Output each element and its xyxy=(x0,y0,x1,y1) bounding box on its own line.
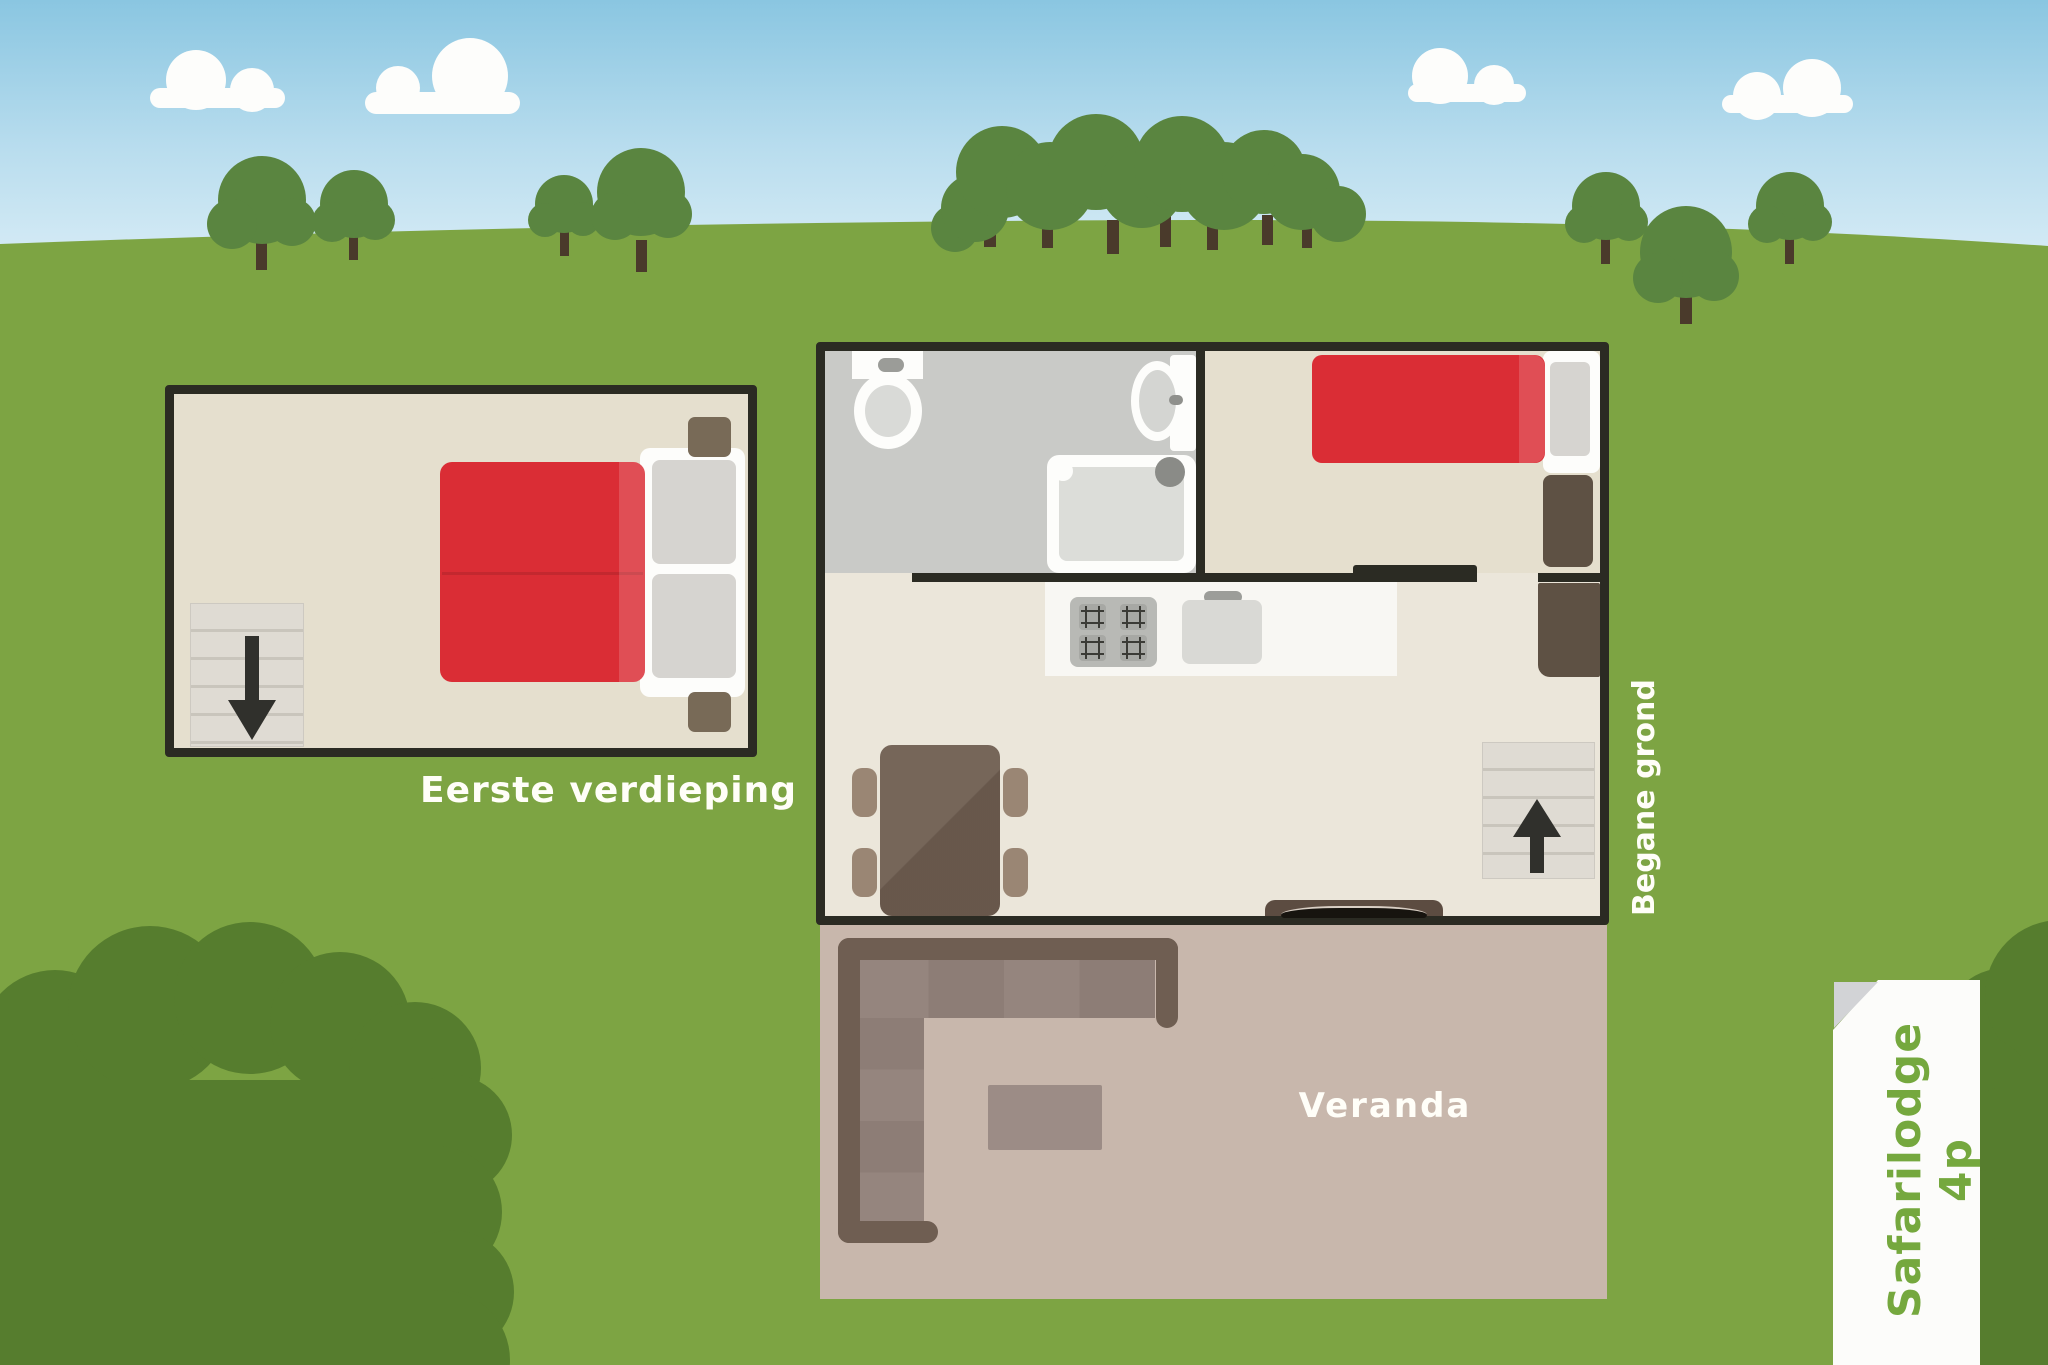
arrow-up-head-icon xyxy=(1513,799,1561,837)
first-floor-plan xyxy=(165,385,757,757)
lodge-sign-label: Safarilodge 4p xyxy=(1880,995,1982,1345)
burner-icon xyxy=(1120,635,1147,661)
chair xyxy=(852,848,877,897)
scene: Eerste verdieping Begane grond Veranda S… xyxy=(0,0,2048,1365)
sofa-cushions-top xyxy=(853,953,1155,1018)
chair xyxy=(1003,848,1028,897)
sofa-back-top xyxy=(838,938,1178,960)
burner-icon xyxy=(1079,635,1106,661)
arrow-up-icon xyxy=(1530,835,1544,873)
cloud-3 xyxy=(1408,48,1526,105)
arrow-down-head-icon xyxy=(228,700,276,740)
stove xyxy=(1070,597,1157,667)
sliding-door xyxy=(1353,565,1477,576)
shower-head-icon xyxy=(1053,461,1073,481)
burner-icon xyxy=(1079,604,1106,630)
sofa-armrest-right xyxy=(1156,938,1178,1028)
ground-floor-label: Begane grond xyxy=(1627,716,1662,916)
cloud-2 xyxy=(365,38,520,114)
pillow xyxy=(652,574,736,678)
barbecue-grill-icon xyxy=(1281,906,1427,918)
nightstand xyxy=(688,692,731,732)
sofa-armrest-bottom xyxy=(838,1221,938,1243)
pillow xyxy=(652,460,736,564)
veranda xyxy=(820,925,1607,1299)
single-bed xyxy=(1312,355,1545,463)
bedroom-wardrobe xyxy=(1543,475,1593,567)
double-bed xyxy=(440,462,645,682)
barbecue xyxy=(1265,900,1443,916)
wall-segment-right xyxy=(1538,573,1600,582)
ground-floor-plan xyxy=(816,342,1609,925)
chair xyxy=(852,768,877,817)
dining-table xyxy=(880,745,1000,916)
chair xyxy=(1003,768,1028,817)
living-wardrobe xyxy=(1538,583,1600,677)
sign-folded-corner xyxy=(1834,982,1878,1028)
veranda-label: Veranda xyxy=(1290,1086,1480,1126)
basin-faucet-icon xyxy=(1169,395,1183,405)
cloud-1 xyxy=(150,50,285,112)
sofa-cushions-left xyxy=(853,1018,924,1224)
shower-drain-icon xyxy=(1155,457,1185,487)
sofa-back-left xyxy=(838,938,860,1243)
toilet-flush-handle xyxy=(878,358,904,372)
burner-icon xyxy=(1120,604,1147,630)
kitchen-sink xyxy=(1182,600,1262,664)
first-floor-label: Eerste verdieping xyxy=(420,770,760,811)
toilet-bowl-inner xyxy=(865,385,911,437)
arrow-down-icon xyxy=(245,636,259,702)
pillow xyxy=(1550,362,1590,456)
wall-bathroom-bedroom xyxy=(1196,351,1205,582)
nightstand xyxy=(688,417,731,457)
coffee-table xyxy=(988,1085,1102,1150)
cloud-4 xyxy=(1722,59,1853,120)
